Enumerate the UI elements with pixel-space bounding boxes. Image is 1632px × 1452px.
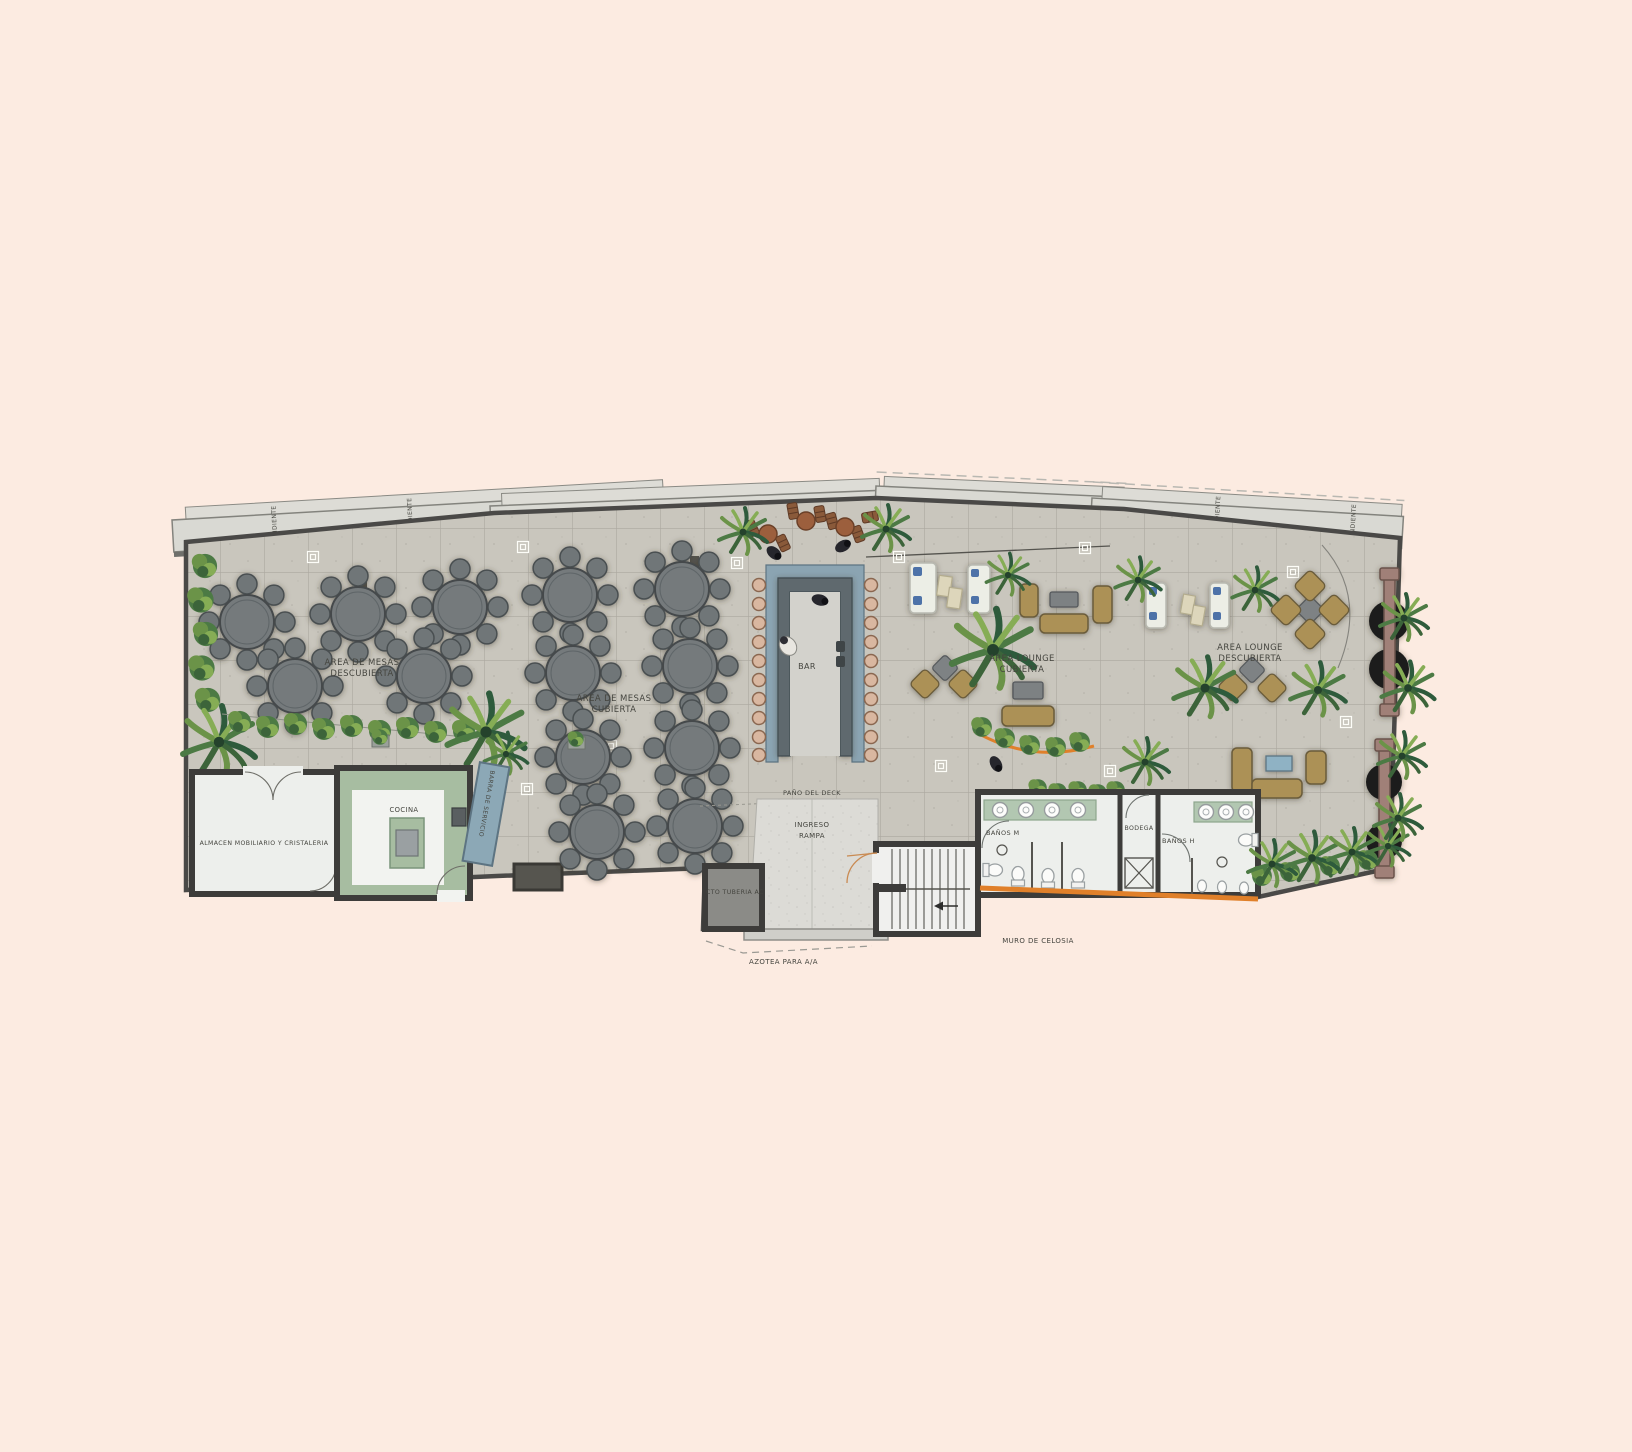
entry-ramp: INGRESO RAMPA — [744, 799, 888, 940]
bar-tap — [836, 641, 845, 652]
bar-stool — [753, 693, 766, 706]
bar-stool — [865, 674, 878, 687]
label-lounge-descubierta-line1: AREA LOUNGE — [1217, 643, 1283, 653]
bar-stool — [753, 655, 766, 668]
label-mesas-descubierta-line2: DESCUBIERTA — [330, 669, 393, 679]
pipe-shaft-room: CTO TUBERIA AC — [705, 866, 764, 929]
bar-stool — [865, 636, 878, 649]
sofa-cushion — [971, 569, 979, 577]
label-lounge-descubierta-line2: DESCUBIERTA — [1218, 654, 1281, 664]
label-mesas-descubierta-line1: AREA DE MESAS — [325, 658, 400, 668]
label-banos-h: BAÑOS H — [1162, 836, 1195, 845]
label-pano-deck: PAÑO DEL DECK — [783, 788, 841, 797]
tan-sofa — [1232, 748, 1252, 792]
lounge-table — [1050, 592, 1078, 607]
door-opening — [243, 766, 303, 778]
blue-table — [1266, 756, 1292, 771]
sink — [1199, 805, 1214, 820]
side-table — [1190, 605, 1205, 626]
label-lounge-cubierta-line1: AREA LOUNGE — [989, 654, 1055, 664]
bar-stool — [753, 636, 766, 649]
label-mesas-cubierta-line1: AREA DE MESAS — [577, 694, 652, 704]
bar-stool — [865, 731, 878, 744]
sofa-cushion — [971, 596, 979, 604]
side-table — [947, 587, 963, 609]
sink — [1019, 803, 1034, 818]
dining-table — [549, 784, 645, 880]
label-muro-celosia: MURO DE CELOSIA — [1002, 937, 1074, 945]
bar-stool — [865, 579, 878, 592]
sink — [993, 803, 1008, 818]
accessible-toilet — [1239, 834, 1259, 847]
tan-sofa — [1002, 706, 1054, 726]
sink — [1071, 803, 1086, 818]
toilet — [1012, 867, 1025, 887]
dining-table — [199, 574, 295, 670]
bar-stool — [865, 712, 878, 725]
bar-stool — [865, 693, 878, 706]
tan-sofa — [1306, 751, 1326, 784]
sofa-cushion — [1213, 612, 1221, 620]
dining-table — [647, 778, 743, 874]
bar-stool — [753, 712, 766, 725]
floorplan-canvas: PENDIENTE PENDIENTE PENDIENTE PENDIENTE — [0, 0, 1632, 1452]
label-lounge-cubierta-line2: CUBIERTA — [1000, 665, 1045, 675]
door-opening — [437, 890, 465, 902]
dining-table — [535, 709, 631, 805]
service-block — [514, 864, 562, 890]
ramp-footing — [744, 929, 888, 940]
kitchen-stove — [452, 808, 466, 826]
bathroom-block: BAÑOS M BODEGA BAÑOS H — [978, 792, 1258, 895]
sofa-cushion — [1149, 612, 1157, 620]
label-ingreso-line2: RAMPA — [799, 832, 825, 840]
label-banos-m: BAÑOS M — [986, 828, 1020, 837]
bench-beam-cap — [1375, 866, 1394, 878]
sofa-cushion — [1213, 587, 1221, 595]
bar-stool — [753, 674, 766, 687]
sofa-cushion — [913, 596, 922, 605]
bar-stool — [865, 598, 878, 611]
label-cto-tuberia: CTO TUBERIA AC — [706, 889, 764, 896]
bar-stool — [753, 617, 766, 630]
bar-stool — [865, 655, 878, 668]
bar-stool — [753, 598, 766, 611]
kitchen-room: COCINA — [337, 768, 470, 902]
tan-sofa — [1093, 586, 1112, 623]
bar-stool — [753, 749, 766, 762]
bar-stool — [753, 579, 766, 592]
door-opening — [872, 853, 882, 883]
bar-interior-floor — [790, 592, 840, 756]
sink — [1045, 803, 1060, 818]
bar-stool — [753, 731, 766, 744]
urinal — [1198, 880, 1207, 892]
toilet — [1072, 869, 1085, 889]
sofa-cushion — [913, 567, 922, 576]
kitchen-appliance — [396, 830, 418, 856]
accessible-toilet — [983, 864, 1003, 877]
bar-stool — [865, 749, 878, 762]
label-bar: BAR — [798, 662, 816, 671]
bar-tap — [836, 656, 845, 667]
sink — [1239, 805, 1254, 820]
tan-sofa — [1040, 614, 1088, 633]
sink — [1219, 805, 1234, 820]
label-mesas-cubierta-line2: CUBIERTA — [592, 705, 637, 715]
urinal — [1218, 881, 1227, 893]
label-almacen: ALMACEN MOBILIARIO Y CRISTALERIA — [200, 840, 329, 847]
label-azotea: AZOTEA PARA A/A — [749, 958, 818, 966]
urinal — [1240, 882, 1249, 894]
deck-table — [836, 518, 854, 536]
label-ingreso-line1: INGRESO — [795, 821, 830, 829]
deck-table — [797, 512, 815, 530]
lounge-table — [1013, 682, 1043, 699]
toilet — [1042, 869, 1055, 889]
storage-room: ALMACEN MOBILIARIO Y CRISTALERIA — [192, 766, 337, 894]
bench-beam-cap — [1380, 568, 1399, 580]
stair-wall-stub — [878, 884, 906, 892]
bar-stool — [865, 617, 878, 630]
label-cocina: COCINA — [390, 806, 419, 814]
label-bodega: BODEGA — [1124, 825, 1153, 832]
